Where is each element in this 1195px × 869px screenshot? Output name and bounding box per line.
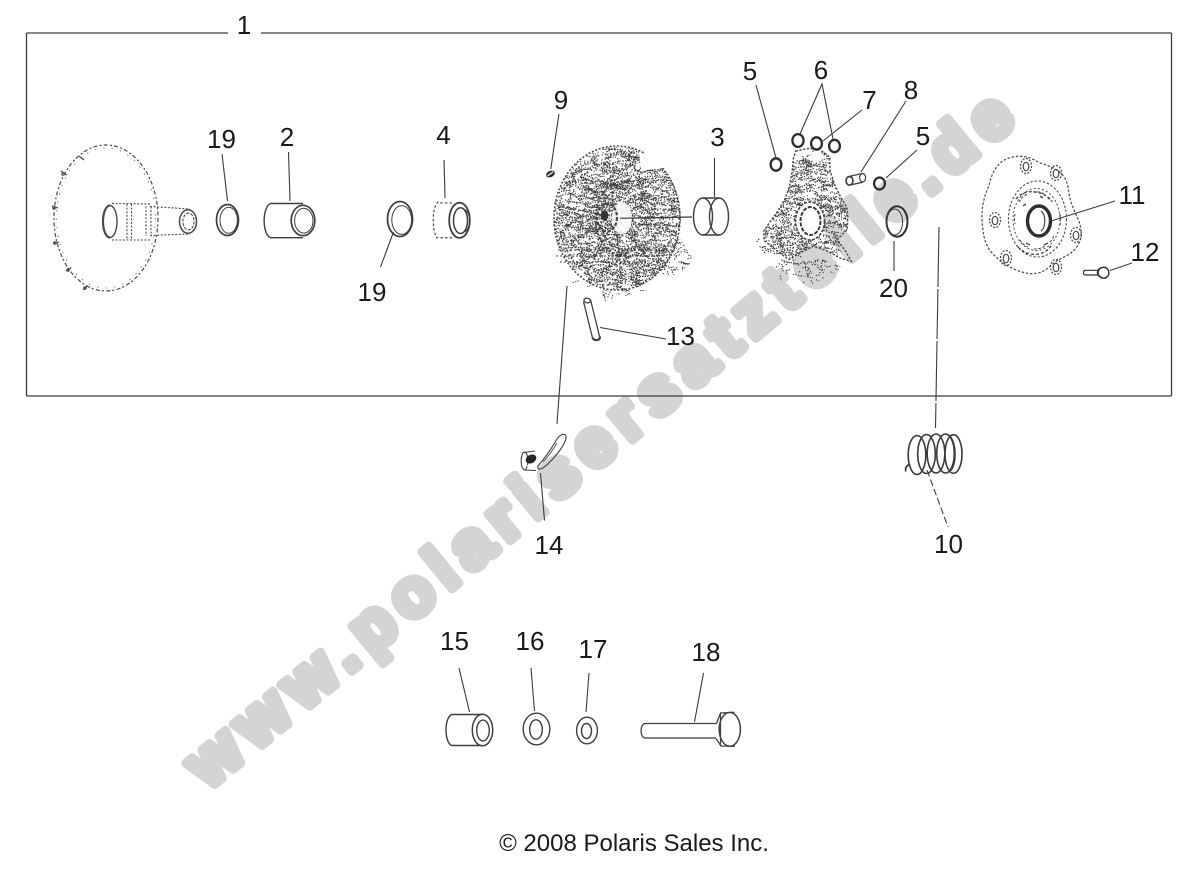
svg-text:1: 1 — [237, 10, 251, 40]
svg-text:19: 19 — [207, 124, 236, 154]
svg-text:10: 10 — [934, 529, 963, 559]
svg-text:8: 8 — [904, 75, 918, 105]
svg-text:15: 15 — [440, 626, 469, 656]
svg-text:5: 5 — [743, 56, 757, 86]
svg-text:© 2008 Polaris Sales Inc.: © 2008 Polaris Sales Inc. — [499, 830, 769, 857]
svg-text:11: 11 — [1119, 180, 1146, 210]
svg-text:14: 14 — [535, 530, 564, 560]
svg-text:18: 18 — [692, 637, 721, 667]
svg-text:6: 6 — [814, 55, 828, 85]
svg-text:2: 2 — [280, 122, 294, 152]
svg-text:5: 5 — [916, 121, 930, 151]
svg-text:3: 3 — [710, 122, 724, 152]
svg-text:19: 19 — [358, 277, 387, 307]
svg-text:16: 16 — [516, 626, 545, 656]
svg-text:20: 20 — [879, 273, 908, 303]
svg-text:17: 17 — [579, 634, 608, 664]
svg-text:9: 9 — [554, 85, 568, 115]
svg-text:12: 12 — [1131, 237, 1160, 267]
svg-text:7: 7 — [862, 85, 876, 115]
svg-text:13: 13 — [666, 321, 695, 351]
svg-text:4: 4 — [436, 120, 450, 150]
